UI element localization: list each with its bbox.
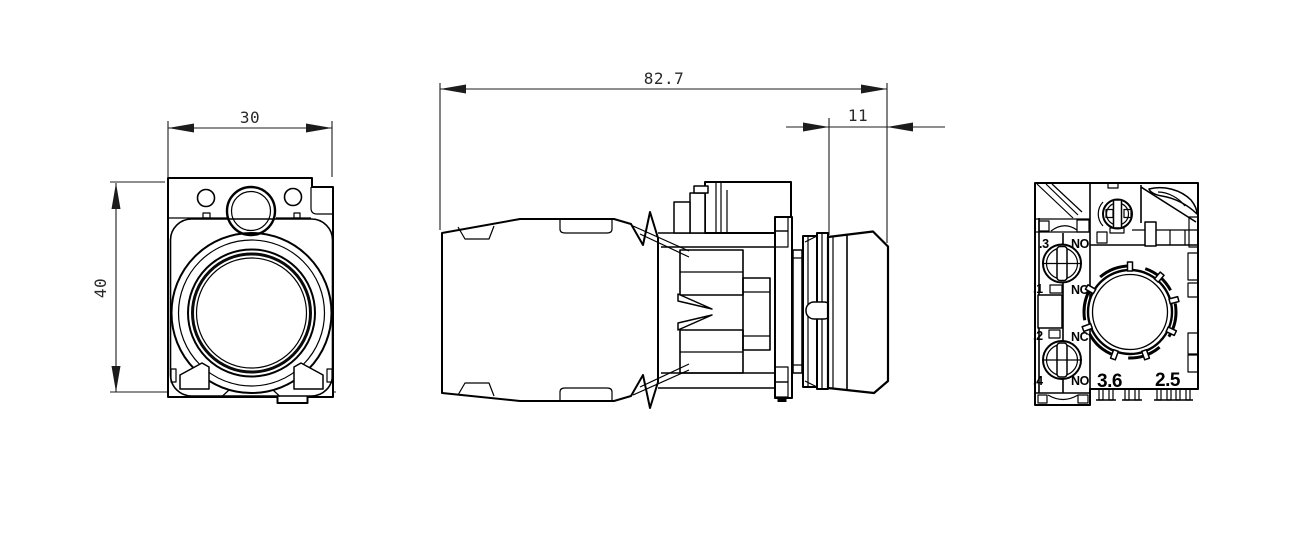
front-width-dimension: 30 (168, 108, 332, 177)
technical-drawing-page: 30 40 (0, 0, 1298, 554)
side-collar-assembly (793, 233, 832, 389)
terminal-contact: NC (1071, 330, 1089, 344)
terminal-id: .2 (1033, 329, 1043, 343)
dim-arrow-left-icon (440, 85, 466, 94)
side-rails (658, 233, 775, 388)
side-depth-dim-text: 11 (848, 106, 868, 125)
mold-marking: 2.5 (1155, 370, 1181, 391)
terminal-cavity (1038, 295, 1062, 328)
front-body (168, 178, 333, 403)
terminal-id: .3 (1039, 237, 1049, 251)
terminal-id: .1 (1033, 282, 1043, 296)
side-button-depth-dimension: 11 (786, 106, 945, 235)
side-length-dimension: 82.7 (440, 69, 887, 243)
dim-arrow-up-icon (112, 183, 121, 209)
side-contact-carrier (678, 250, 770, 373)
dim-arrow-inward-right-icon (887, 123, 913, 132)
flange-foot (778, 398, 787, 402)
side-length-dim-text: 82.7 (644, 69, 685, 88)
side-button-cap (828, 232, 888, 394)
dim-arrow-inward-left-icon (803, 123, 829, 132)
terminal-id: .4 (1033, 374, 1043, 388)
dim-arrow-down-icon (112, 366, 121, 392)
side-mounting-flange (775, 217, 792, 402)
technical-drawing-canvas: 30 40 (0, 0, 1298, 554)
front-height-dim-text: 40 (91, 278, 110, 298)
spring-clip-upper (678, 294, 712, 309)
front-view: 30 40 (91, 108, 336, 403)
front-width-dim-text: 30 (240, 108, 260, 127)
dim-arrow-left-icon (168, 124, 194, 133)
terminal-screw-top (1043, 245, 1081, 283)
spring-clip-lower (678, 315, 712, 330)
side-view: 82.7 11 (440, 69, 945, 408)
dim-arrow-right-icon (306, 124, 332, 133)
terminal-screw-bottom (1043, 341, 1081, 379)
side-housing (442, 212, 689, 408)
dim-arrow-right-icon (861, 85, 887, 94)
side-terminal-block (674, 182, 791, 233)
rear-view: .3 NO .1 NC .2 NC .4 NO (1033, 183, 1198, 405)
